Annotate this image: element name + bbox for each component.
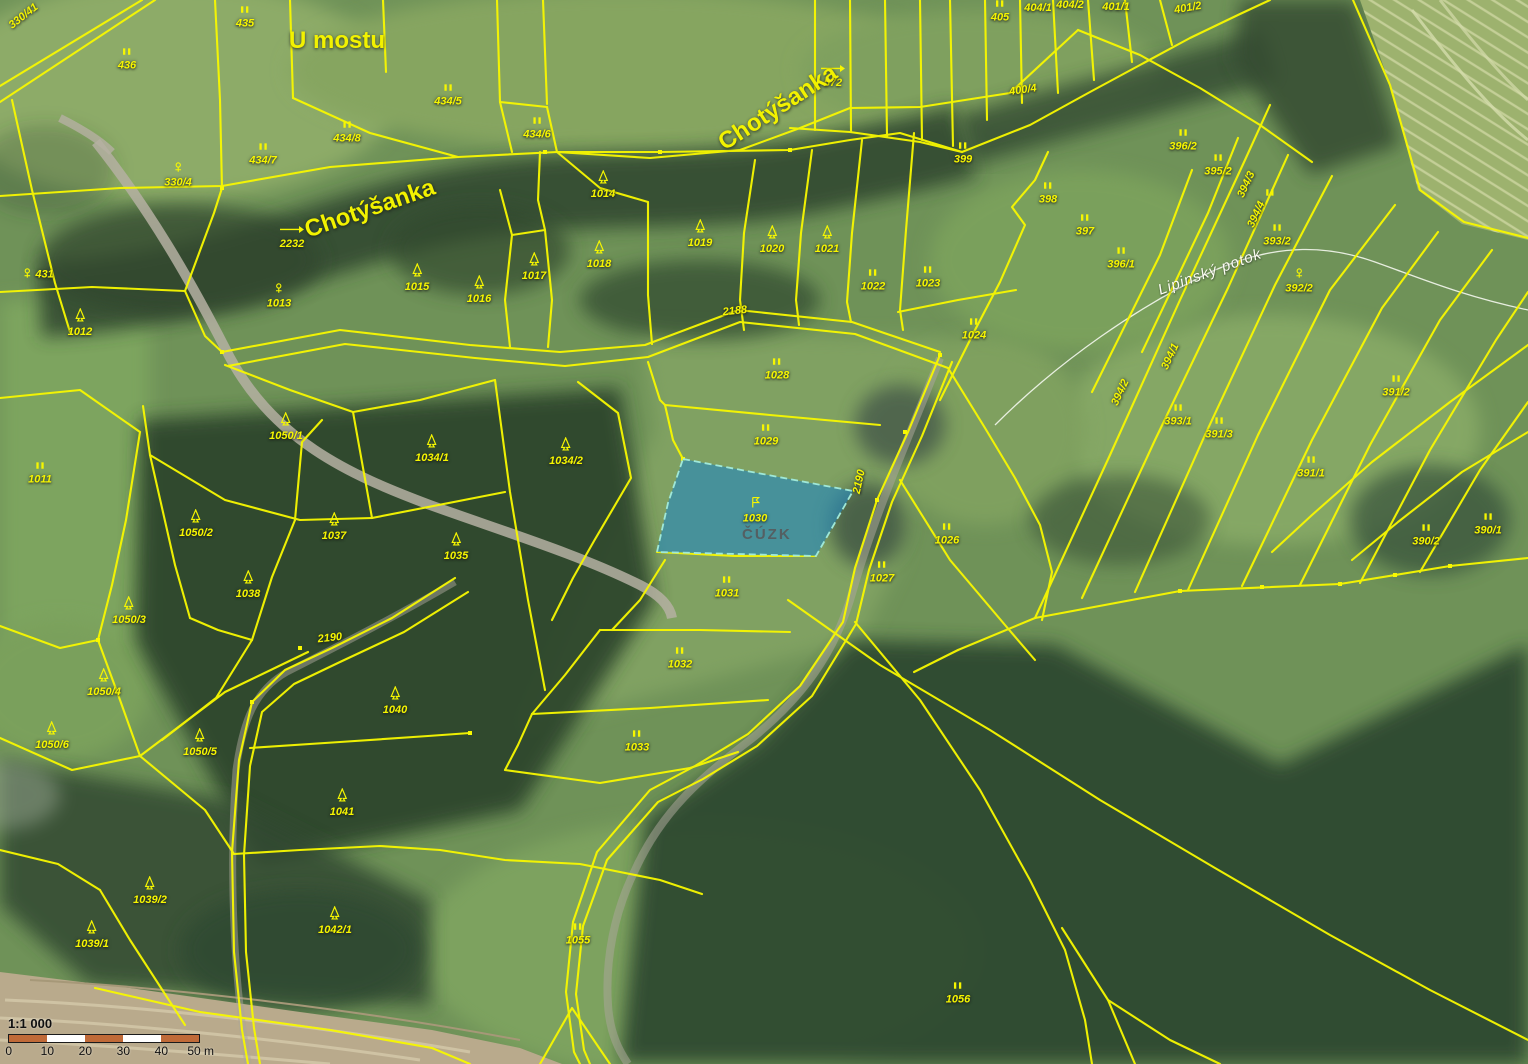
scalebar-tick: 30 [117, 1044, 130, 1058]
boundary-point [220, 186, 224, 190]
scalebar-ticks: 01020304050 m [8, 1043, 228, 1057]
scalebar-tick: 10 [41, 1044, 54, 1058]
scalebar-ratio: 1:1 000 [8, 1016, 248, 1031]
boundary-point [1260, 585, 1264, 589]
boundary-point [1393, 573, 1397, 577]
scalebar-segment [85, 1035, 123, 1042]
boundary-point [788, 148, 792, 152]
boundary-point [875, 498, 879, 502]
boundary-point [250, 700, 254, 704]
boundary-point [1448, 564, 1452, 568]
boundary-point [298, 646, 302, 650]
boundary-point [658, 150, 662, 154]
scalebar-tick: 0 [5, 1044, 12, 1058]
boundary-point [903, 430, 907, 434]
boundary-point [1178, 589, 1182, 593]
scalebar: 1:1 000 01020304050 m [8, 1016, 248, 1057]
scalebar-tick: 50 m [187, 1044, 214, 1058]
boundary-point [1338, 582, 1342, 586]
scalebar-tick: 40 [155, 1044, 168, 1058]
boundary-point [220, 350, 224, 354]
scalebar-tick: 20 [79, 1044, 92, 1058]
scalebar-segment [9, 1035, 47, 1042]
scalebar-segment [161, 1035, 199, 1042]
boundary-point [938, 353, 942, 357]
watermark: ČÚZK [742, 526, 792, 543]
scalebar-segment [123, 1035, 161, 1042]
boundary-point [96, 638, 100, 642]
boundary-line [850, 0, 851, 131]
boundary-point [468, 731, 472, 735]
scalebar-bar [8, 1034, 200, 1043]
scalebar-segment [47, 1035, 85, 1042]
map-canvas[interactable]: 435436434/5434/8434/6434/7330/4330/41431… [0, 0, 1528, 1064]
boundary-point [543, 150, 547, 154]
